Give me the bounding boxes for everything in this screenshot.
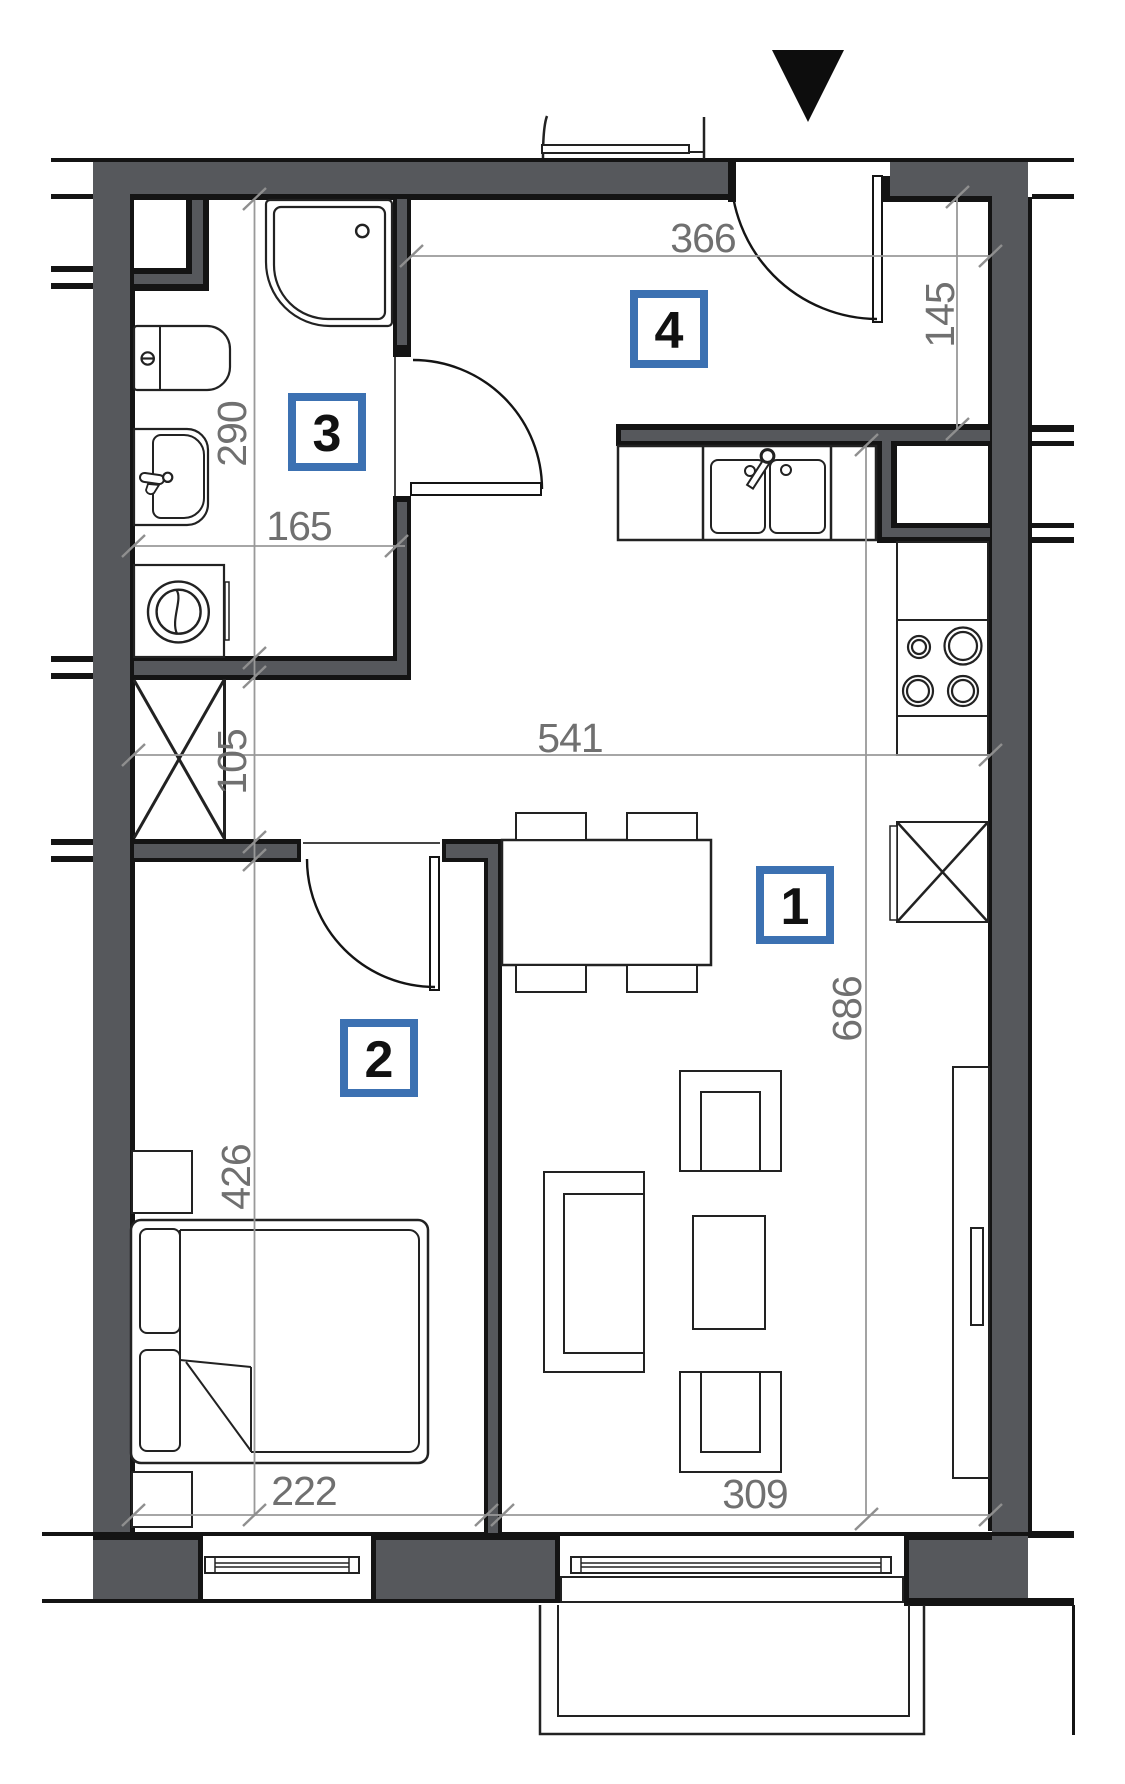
svg-text:1: 1	[781, 878, 810, 936]
svg-text:541: 541	[537, 715, 602, 761]
svg-text:686: 686	[824, 976, 870, 1041]
svg-text:426: 426	[213, 1144, 259, 1209]
svg-text:145: 145	[917, 282, 963, 348]
svg-text:105: 105	[209, 729, 255, 795]
svg-text:165: 165	[266, 503, 332, 549]
svg-text:290: 290	[209, 401, 255, 467]
svg-text:309: 309	[722, 1471, 787, 1517]
svg-text:2: 2	[365, 1031, 394, 1089]
svg-text:3: 3	[313, 405, 342, 463]
svg-text:4: 4	[655, 302, 684, 360]
svg-text:222: 222	[271, 1468, 336, 1514]
svg-text:366: 366	[670, 215, 735, 261]
